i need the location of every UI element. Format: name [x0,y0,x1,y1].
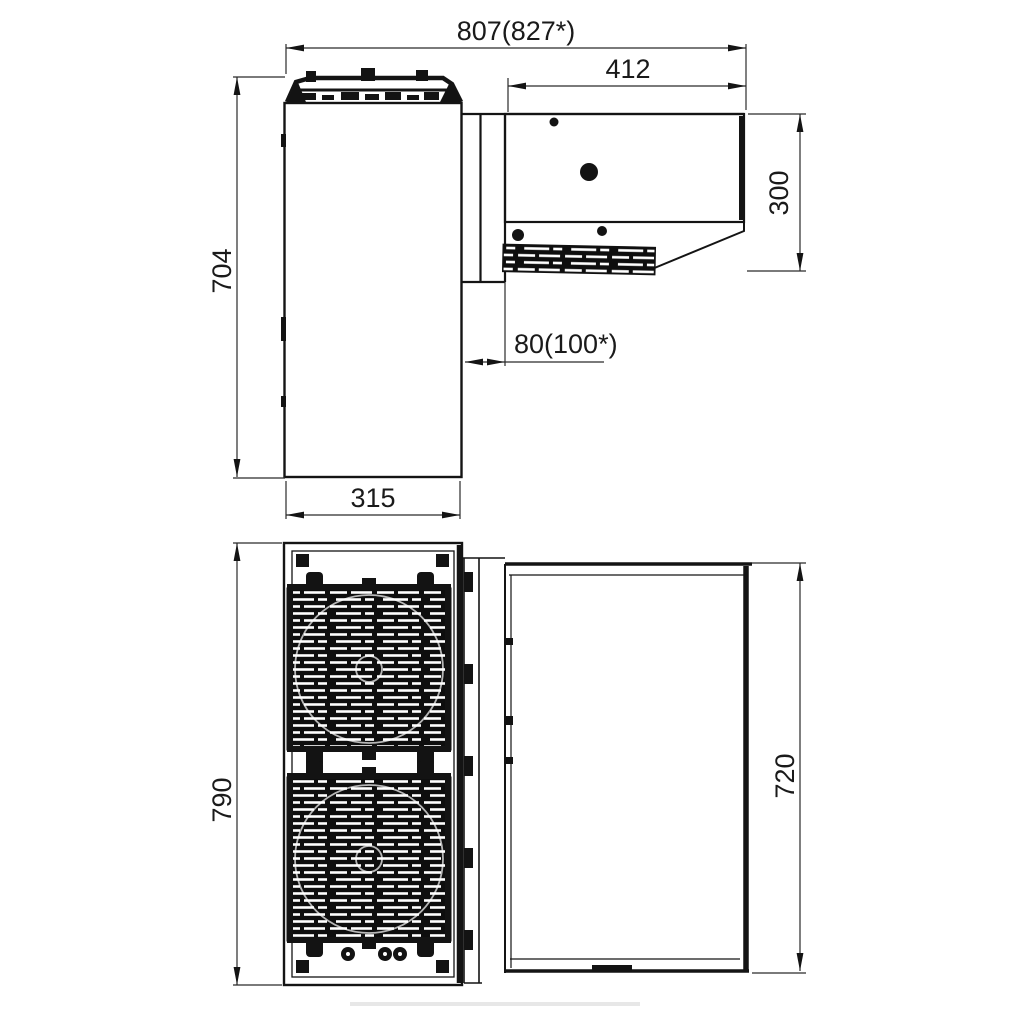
evaporator-body [503,114,744,275]
indoor-panel [505,564,752,973]
drawing-canvas: 807(827*) 412 300 704 [0,0,1024,1024]
panel-clamp [592,965,632,972]
dimension-unit-depth: 315 [286,481,460,519]
corner-bracket [296,554,309,567]
hinge-tick [505,757,513,764]
top-fan-guard [287,68,461,102]
air-outlet-louver [503,244,656,274]
dim-label-790: 790 [207,777,237,822]
drain-plug-dot [580,163,598,181]
corner-bracket [296,960,309,973]
dim-label-315: 315 [350,483,395,513]
dimension-wall-thickness: 80(100*) [465,282,618,366]
dimension-panel-height: 720 [752,563,806,973]
condensing-unit-body [285,103,462,477]
hinge-tick [505,638,513,645]
dim-label-720: 720 [770,753,800,798]
technical-drawing: 807(827*) 412 300 704 [0,0,1024,1024]
cable-glands [341,947,407,961]
front-plan-view: 790 720 [207,543,806,1006]
dim-label-807: 807(827*) [457,16,576,46]
side-profile-view: 807(827*) 412 300 704 [207,16,806,519]
corner-bracket [436,960,449,973]
fan-grille-2 [287,761,451,957]
scan-shadow [350,1002,640,1006]
dim-label-704: 704 [207,248,237,293]
corner-bracket [436,554,449,567]
dimension-evaporator-height: 300 [747,114,806,271]
dimension-unit-height: 704 [207,77,285,478]
screw-dot [597,226,607,236]
screw-dot [512,229,524,241]
dim-label-80: 80(100*) [514,329,618,359]
wall-edge-strip [462,558,505,983]
dim-label-300: 300 [764,170,794,215]
fan-grille-1 [287,572,451,768]
hinge-tick [505,716,513,725]
dim-label-412: 412 [605,54,650,84]
screw-dot [550,118,559,127]
dimension-front-height: 790 [207,543,282,985]
dimension-evaporator-width: 412 [508,54,746,112]
